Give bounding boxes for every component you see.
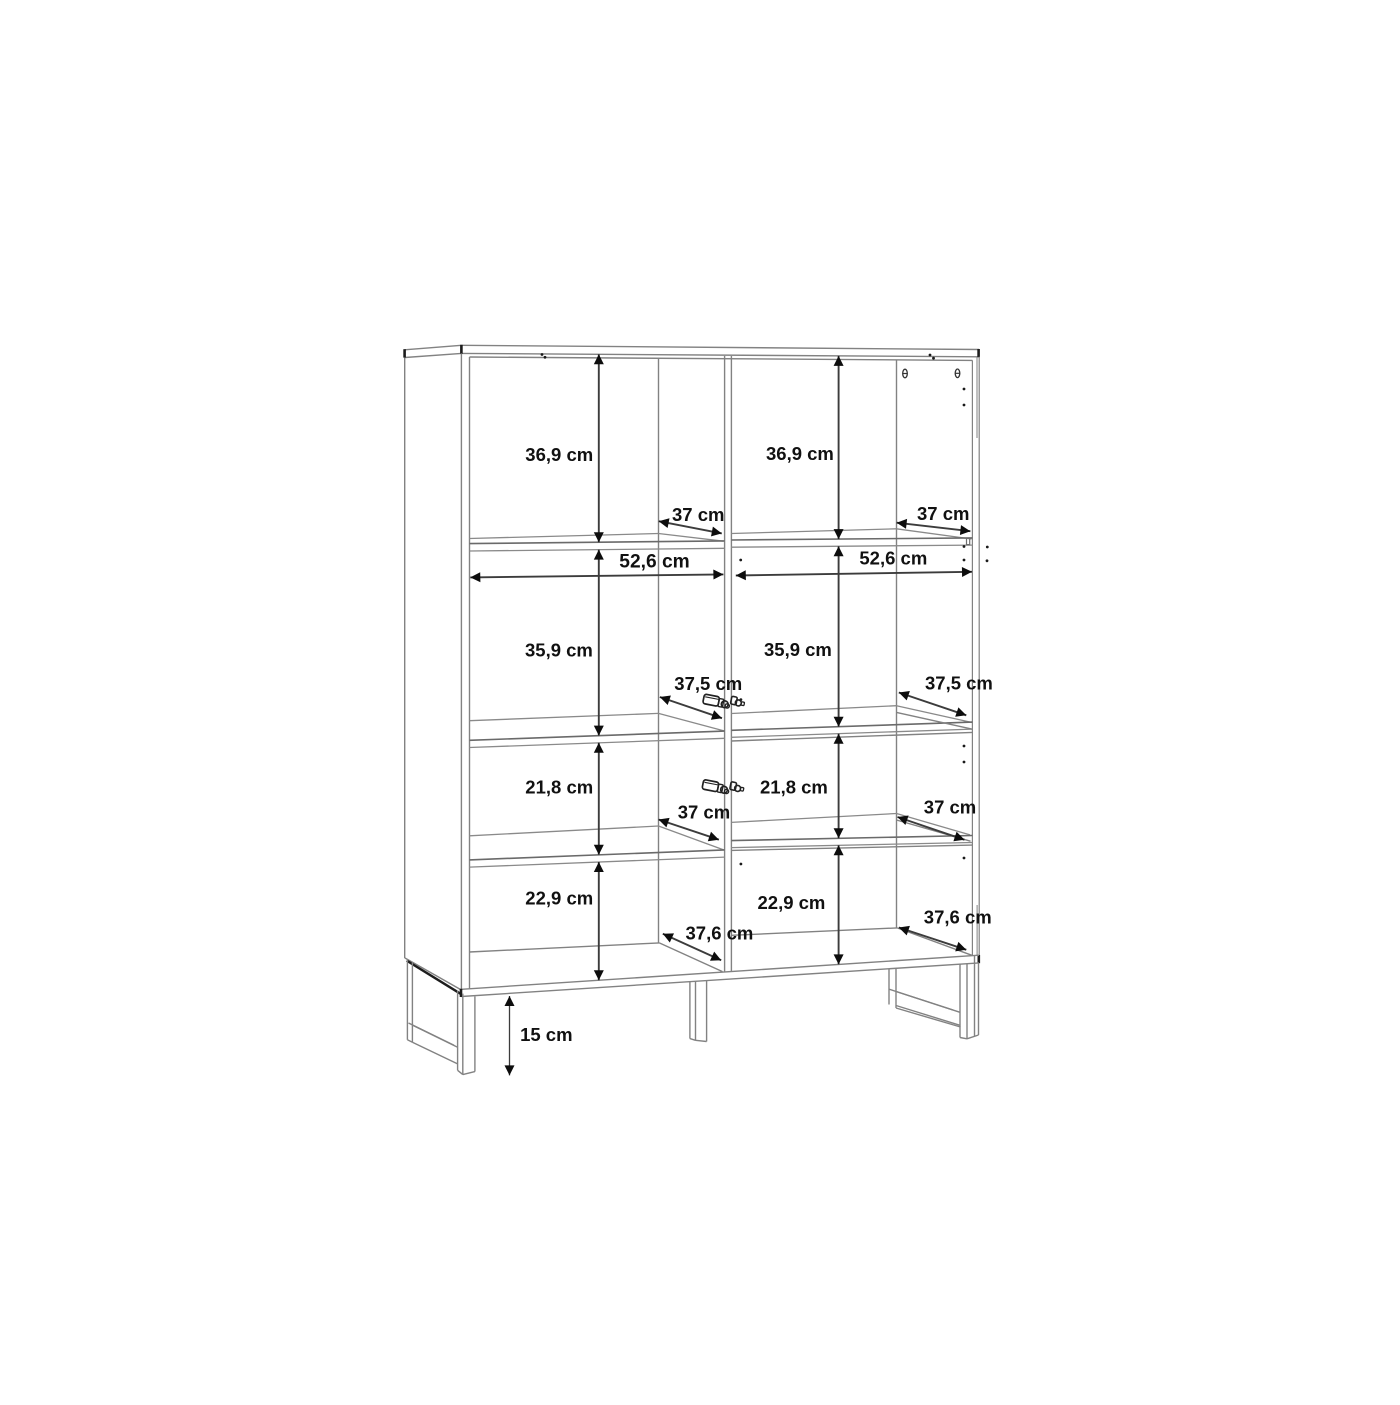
svg-text:35,9 cm: 35,9 cm: [525, 639, 593, 660]
svg-text:37,5 cm: 37,5 cm: [925, 673, 993, 694]
svg-text:37,6 cm: 37,6 cm: [686, 923, 754, 944]
svg-text:22,9 cm: 22,9 cm: [525, 888, 593, 909]
svg-text:35,9 cm: 35,9 cm: [764, 639, 832, 660]
svg-text:37 cm: 37 cm: [924, 796, 976, 817]
svg-text:37 cm: 37 cm: [917, 503, 969, 524]
svg-text:36,9 cm: 36,9 cm: [525, 444, 593, 465]
svg-text:22,9 cm: 22,9 cm: [758, 892, 826, 913]
svg-text:21,8 cm: 21,8 cm: [525, 777, 593, 798]
svg-text:52,6 cm: 52,6 cm: [619, 552, 689, 573]
svg-text:15 cm: 15 cm: [520, 1024, 572, 1045]
svg-text:36,9 cm: 36,9 cm: [766, 443, 834, 464]
svg-text:37 cm: 37 cm: [672, 504, 724, 525]
svg-text:37,6 cm: 37,6 cm: [924, 906, 992, 927]
svg-text:21,8 cm: 21,8 cm: [760, 776, 828, 797]
svg-text:37 cm: 37 cm: [678, 802, 730, 823]
svg-text:37,5 cm: 37,5 cm: [674, 673, 742, 694]
svg-text:52,6 cm: 52,6 cm: [859, 547, 927, 568]
